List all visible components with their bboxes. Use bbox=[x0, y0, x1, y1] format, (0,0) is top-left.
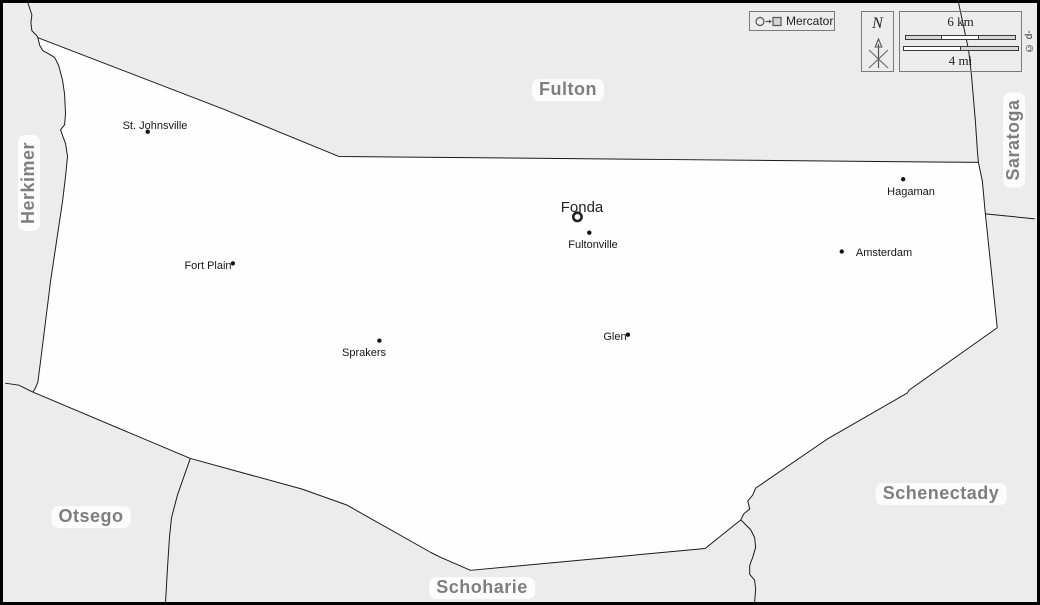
herkimer-otsego-border-line bbox=[5, 383, 33, 392]
town-label-fort-plain: Fort Plain bbox=[184, 260, 231, 272]
county-label-schenectady: Schenectady bbox=[876, 483, 1007, 505]
county-map: Fulton Herkimer Saratoga Otsego Schohari… bbox=[0, 0, 1040, 605]
schoharie-schenectady-border-line bbox=[741, 520, 756, 602]
saratoga-schenectady-border-line bbox=[985, 214, 1035, 219]
town-label-glen: Glen bbox=[603, 331, 626, 343]
fultonville-dot bbox=[587, 231, 591, 235]
montgomery-county-shape bbox=[33, 38, 997, 571]
scale-bar-mi bbox=[903, 46, 1019, 51]
otsego-schoharie-border-line bbox=[166, 458, 191, 602]
town-label-fonda: Fonda bbox=[561, 200, 604, 217]
compass-box: N bbox=[861, 11, 894, 72]
county-label-fulton: Fulton bbox=[532, 79, 604, 101]
herkimer-fulton-border-line bbox=[28, 3, 38, 38]
map-canvas bbox=[3, 3, 1037, 602]
county-label-herkimer: Herkimer bbox=[18, 135, 40, 231]
mercator-projection-icon bbox=[755, 15, 782, 28]
town-label-st-johnsville: St. Johnsville bbox=[123, 120, 188, 132]
town-label-fultonville: Fultonville bbox=[568, 239, 618, 251]
county-label-otsego: Otsego bbox=[51, 506, 130, 528]
amsterdam-dot bbox=[840, 249, 844, 253]
town-label-hagaman: Hagaman bbox=[887, 186, 935, 198]
county-label-saratoga: Saratoga bbox=[1003, 92, 1025, 187]
scale-bar-box: 6 km 4 mi bbox=[899, 11, 1022, 72]
copyright-notice: © d-maps.com bbox=[1024, 11, 1040, 73]
compass-rose-icon bbox=[862, 36, 895, 72]
town-label-amsterdam: Amsterdam bbox=[856, 247, 912, 259]
sprakers-dot bbox=[377, 338, 381, 342]
county-label-schoharie: Schoharie bbox=[429, 577, 535, 599]
scale-km-label: 6 km bbox=[947, 14, 973, 30]
town-label-sprakers: Sprakers bbox=[342, 347, 386, 359]
projection-label: Mercator bbox=[786, 14, 833, 28]
scale-mi-label: 4 mi bbox=[949, 53, 972, 69]
scale-bar-km bbox=[905, 35, 1016, 40]
compass-north-label: N bbox=[872, 15, 883, 33]
projection-legend: Mercator bbox=[749, 11, 835, 31]
hagaman-dot bbox=[901, 177, 905, 181]
